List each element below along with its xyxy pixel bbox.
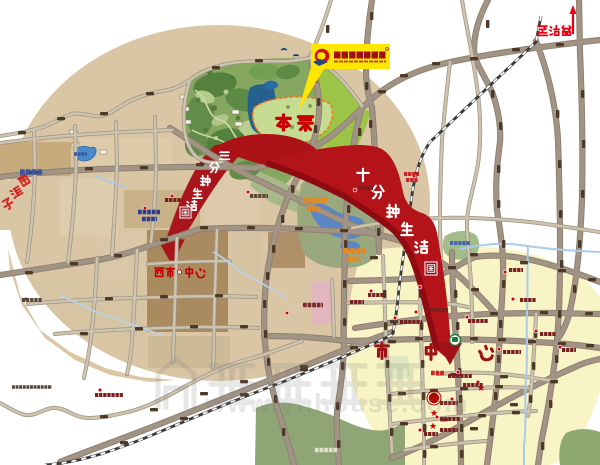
svg-text:www.ynhouse.com: www.ynhouse.com (204, 388, 470, 418)
